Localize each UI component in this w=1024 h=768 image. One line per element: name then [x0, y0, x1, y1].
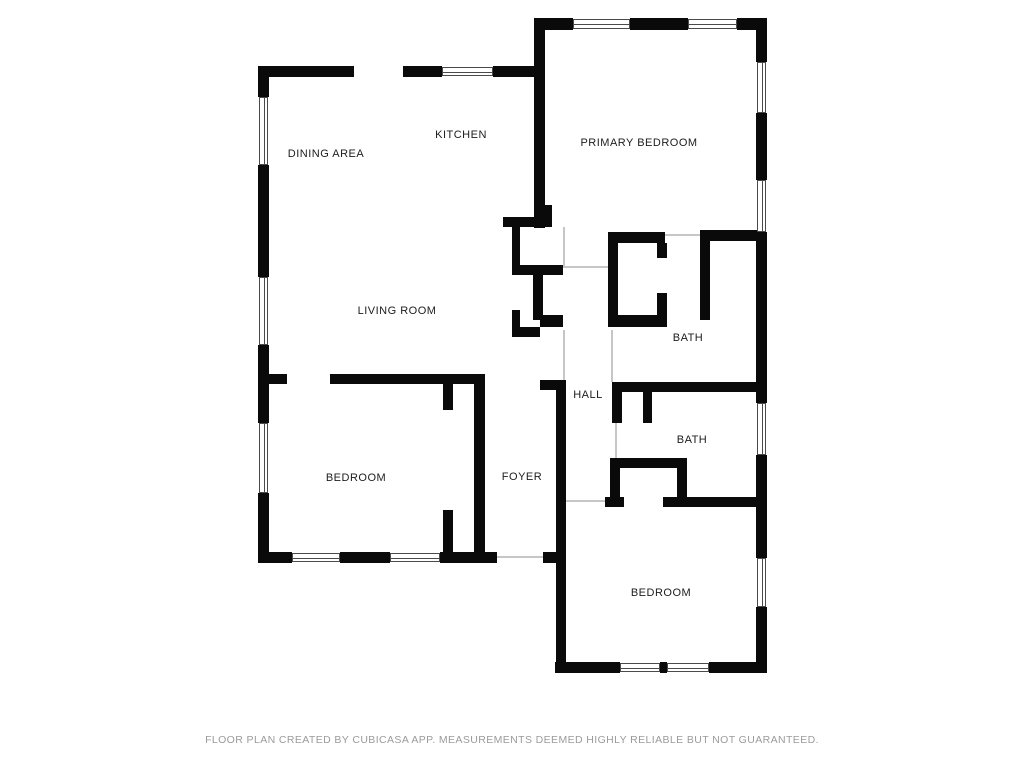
- window-center-line: [443, 72, 492, 73]
- window-center-line: [762, 63, 763, 112]
- wall-segment: [700, 230, 758, 241]
- wall-segment: [709, 662, 767, 673]
- window-center-line: [264, 278, 265, 344]
- wall-segment: [258, 345, 269, 423]
- wall-segment: [503, 217, 552, 227]
- wall-segment: [258, 374, 287, 384]
- window-icon: [573, 19, 630, 29]
- window-center-line: [574, 24, 629, 25]
- room-label-kitchen: KITCHEN: [435, 129, 487, 141]
- wall-segment: [258, 165, 269, 277]
- window-center-line: [762, 559, 763, 606]
- door-opening-line: [563, 227, 565, 267]
- door-opening-line: [615, 423, 617, 458]
- window-center-line: [762, 404, 763, 454]
- wall-segment: [543, 205, 552, 217]
- wall-segment: [540, 315, 563, 327]
- wall-segment: [612, 392, 622, 423]
- door-opening-line: [665, 234, 700, 236]
- window-icon: [757, 180, 766, 232]
- wall-segment: [756, 18, 767, 62]
- window-icon: [390, 553, 440, 562]
- window-icon: [688, 19, 737, 29]
- wall-segment: [612, 382, 760, 392]
- room-label-bedroom-left: BEDROOM: [326, 472, 386, 484]
- wall-segment: [657, 243, 667, 258]
- window-icon: [667, 663, 709, 672]
- wall-segment: [330, 374, 483, 384]
- wall-segment: [443, 510, 453, 563]
- wall-segment: [700, 230, 710, 320]
- wall-segment: [512, 265, 563, 275]
- wall-segment: [556, 390, 566, 673]
- floor-plan-canvas: DINING AREAKITCHENPRIMARY BEDROOMLIVING …: [0, 0, 1024, 768]
- wall-segment: [540, 380, 566, 390]
- wall-segment: [677, 468, 687, 502]
- room-label-foyer: FOYER: [502, 471, 542, 483]
- room-label-bath-lower: BATH: [677, 434, 708, 446]
- window-icon: [259, 97, 268, 165]
- door-opening-line: [611, 330, 613, 382]
- wall-segment: [258, 66, 269, 97]
- wall-segment: [512, 327, 540, 337]
- window-icon: [259, 423, 268, 493]
- wall-segment: [643, 392, 652, 423]
- window-center-line: [762, 181, 763, 231]
- wall-segment: [630, 18, 688, 30]
- wall-segment: [258, 66, 354, 77]
- window-center-line: [264, 98, 265, 164]
- wall-segment: [608, 315, 667, 327]
- wall-segment: [610, 458, 687, 468]
- window-icon: [757, 62, 766, 113]
- room-label-bedroom-right: BEDROOM: [631, 587, 691, 599]
- window-center-line: [264, 424, 265, 492]
- door-opening-line: [566, 500, 605, 502]
- door-opening-line: [563, 330, 565, 382]
- wall-segment: [533, 275, 543, 320]
- footer-disclaimer: FLOOR PLAN CREATED BY CUBICASA APP. MEAS…: [0, 734, 1024, 746]
- window-icon: [757, 558, 766, 607]
- room-label-bath-upper: BATH: [673, 332, 704, 344]
- window-icon: [292, 553, 340, 562]
- window-icon: [442, 67, 493, 76]
- wall-segment: [756, 232, 767, 403]
- window-center-line: [293, 558, 339, 559]
- window-center-line: [668, 668, 708, 669]
- window-center-line: [689, 24, 736, 25]
- wall-segment: [608, 232, 665, 243]
- window-icon: [259, 277, 268, 345]
- wall-segment: [660, 662, 667, 673]
- window-icon: [620, 663, 660, 672]
- wall-segment: [756, 113, 767, 180]
- wall-segment: [340, 552, 390, 563]
- room-label-primary-bedroom: PRIMARY BEDROOM: [580, 137, 697, 149]
- window-center-line: [621, 668, 659, 669]
- wall-segment: [474, 374, 485, 563]
- wall-segment: [534, 18, 545, 228]
- wall-segment: [443, 384, 453, 410]
- room-label-hall: HALL: [573, 389, 603, 401]
- wall-segment: [608, 232, 618, 327]
- wall-segment: [610, 468, 620, 507]
- wall-segment: [403, 66, 442, 77]
- room-label-living-room: LIVING ROOM: [358, 305, 437, 317]
- window-icon: [757, 403, 766, 455]
- room-label-dining-area: DINING AREA: [288, 148, 364, 160]
- door-opening-line: [563, 266, 608, 268]
- window-center-line: [391, 558, 439, 559]
- door-opening-line: [497, 556, 543, 558]
- wall-segment: [258, 552, 292, 563]
